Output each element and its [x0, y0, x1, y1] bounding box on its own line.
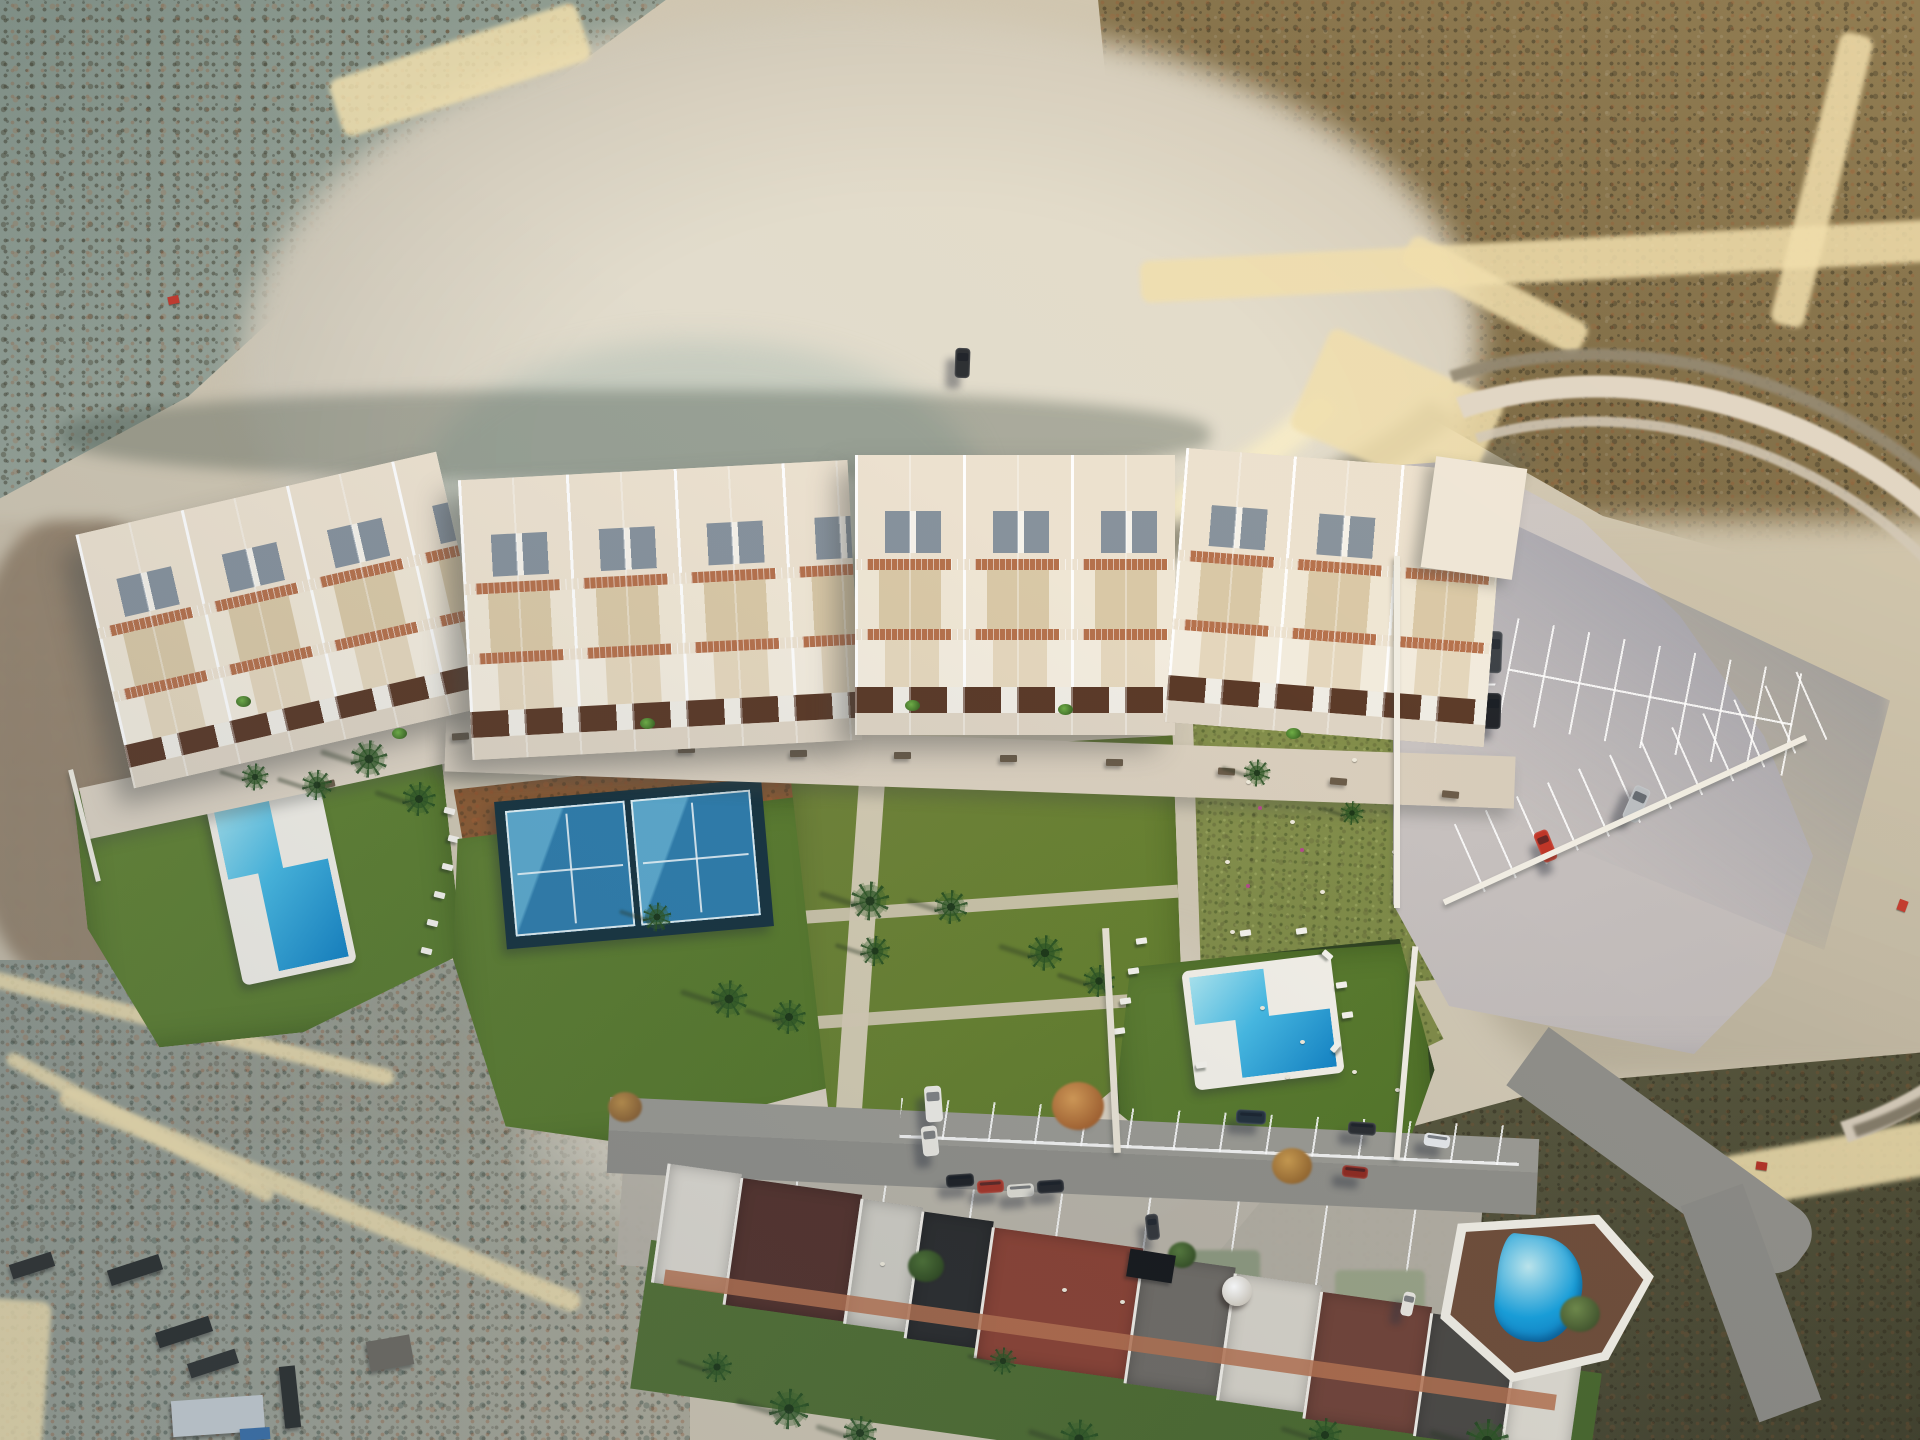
rock	[1290, 820, 1295, 824]
palm-tree	[934, 890, 968, 924]
rock	[880, 1262, 885, 1266]
palm-tree	[850, 881, 889, 920]
aerial-photo	[0, 0, 1920, 1440]
red-ground-sign	[1755, 1161, 1767, 1170]
car-navy	[1236, 1109, 1267, 1125]
palm-tree	[350, 740, 387, 777]
flower-patch	[1246, 884, 1250, 888]
rock	[1246, 780, 1251, 784]
roof-end-extension	[1421, 456, 1528, 580]
car-white	[1007, 1183, 1035, 1198]
bench	[1106, 759, 1123, 766]
bench	[790, 750, 807, 757]
tree	[1432, 1064, 1478, 1104]
rock	[1225, 860, 1230, 864]
palm-tree	[769, 1389, 810, 1430]
car-black	[946, 1173, 975, 1188]
tree	[908, 1250, 944, 1282]
rock	[1230, 930, 1235, 934]
flower-patch	[1300, 848, 1304, 852]
tree	[1272, 1148, 1312, 1184]
planter-shrub	[236, 696, 251, 707]
palm-tree	[702, 1352, 733, 1383]
padel-court-1	[505, 801, 636, 937]
palm-tree	[772, 1000, 806, 1034]
rock	[1285, 1075, 1290, 1079]
bench	[1000, 755, 1017, 762]
palm-tree	[1340, 801, 1364, 825]
palm-tree	[241, 763, 268, 790]
house-dome	[1222, 1276, 1252, 1306]
padel-courts	[494, 779, 774, 950]
palm-tree	[402, 782, 436, 816]
bench	[1330, 777, 1348, 785]
car-dark	[1348, 1121, 1377, 1136]
rock	[1260, 1006, 1265, 1010]
palm-tree	[989, 1347, 1016, 1374]
car-van-white	[924, 1085, 943, 1122]
palm-tree	[710, 980, 747, 1017]
garden-wall	[1394, 556, 1400, 908]
car-red	[1341, 1165, 1368, 1180]
shed-blue	[240, 1427, 271, 1440]
palm-tree	[860, 936, 891, 967]
flower-patch	[1258, 806, 1262, 810]
planter-shrub	[640, 718, 655, 729]
planter-shrub	[905, 700, 920, 711]
rock	[1062, 1288, 1067, 1292]
rock	[1352, 758, 1357, 762]
palm-tree	[643, 903, 672, 932]
bench	[894, 752, 911, 759]
tree	[1560, 1296, 1600, 1332]
car-white	[920, 1125, 939, 1157]
rock	[1320, 890, 1325, 894]
palm-tree	[1027, 935, 1063, 971]
rock	[1352, 1070, 1357, 1074]
rock	[1300, 1040, 1305, 1044]
car-black	[1037, 1179, 1065, 1194]
car-dark	[1145, 1213, 1161, 1240]
car-lone-dark	[954, 348, 970, 379]
rock	[1120, 1300, 1125, 1304]
planter-shrub	[392, 728, 407, 739]
tree	[608, 1092, 642, 1122]
bench	[452, 732, 469, 740]
tree	[1052, 1082, 1104, 1130]
apartment-block-central-1	[458, 460, 862, 760]
planter-shrub	[1286, 728, 1301, 739]
palm-tree	[302, 770, 333, 801]
planter-shrub	[1058, 704, 1073, 715]
apartment-block-central-2	[855, 455, 1175, 735]
car-red	[977, 1179, 1005, 1194]
